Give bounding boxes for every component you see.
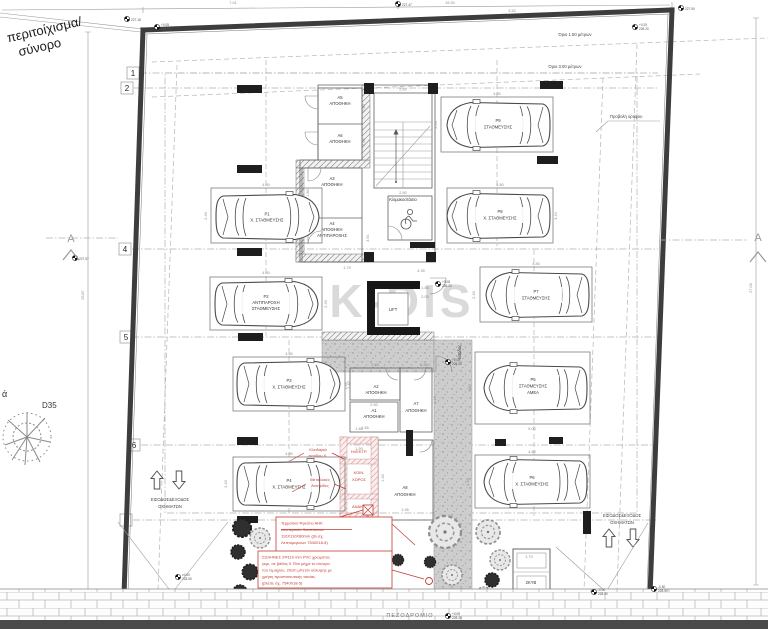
- pvc-note-2: γκρι, σε βάθος 0.75m μέχρι το σύνορο: [262, 561, 331, 566]
- street-edge: [0, 620, 768, 629]
- lock-note-2: εισόδου Χ.: [309, 453, 328, 458]
- floor-plan-drawing: 16.30 7.01 3.52 25.87 27.03 περιτοίχισμα…: [0, 0, 768, 629]
- p7-id: P7: [533, 289, 539, 294]
- p2-id: P2: [263, 294, 269, 299]
- dim-right-total: 27.03: [749, 283, 753, 293]
- grid-bubble-1: 1: [127, 67, 139, 79]
- dim-lobby-205: 2.05: [421, 295, 428, 299]
- storage-a3-type: ΑΠΟΘΗΚΗ: [321, 182, 342, 187]
- level-22747: 227.47: [402, 3, 412, 7]
- parking-stall-p7: P7 ΣΤΑΘΜΕΥΣΗΣ 4.80 2.40: [472, 262, 592, 322]
- p5-dim-w: 3.30: [468, 384, 472, 391]
- entry-right-label-1: ΕΙΣΟΔΟΣ&ΕΞΟΔΟΣ: [603, 513, 642, 518]
- level-22850-c: 228.50: [658, 589, 668, 593]
- level-22820-c: 228.20: [442, 284, 452, 288]
- p9-dim-l: 4.80: [493, 92, 500, 96]
- p1-dim-l: 4.80: [262, 183, 269, 187]
- p4-dim-w: 2.40: [224, 480, 228, 487]
- p6-dim-w: 2.40: [466, 478, 470, 485]
- ahk-note-1: Τερματικό Φρεάτιο ΑΗΚ: [281, 521, 323, 526]
- sidewalk-label: ΠΕΖΟΔΡΟΜΙΟ: [386, 613, 433, 619]
- metal-note-1: Μεταλλικές: [310, 477, 330, 482]
- storage-a4-type: ΑΠΟΘΗΚΗ: [321, 227, 342, 232]
- storage-a6-id: A6: [337, 133, 343, 138]
- storage-a6-type: ΑΠΟΘΗΚΗ: [329, 139, 350, 144]
- grid-number-4: 4: [123, 245, 128, 254]
- pvc-note-box: ΣΩΛΗΝΕΣ 2Φ110 mm PVC χρώματος γκρι, σε β…: [258, 551, 433, 588]
- ahk-note-4: Λεπτομερειών 7540018-5): [281, 540, 328, 545]
- dim-tech-140: 1.40: [381, 474, 385, 481]
- grid-number-6: 6: [132, 441, 137, 450]
- p1-label: Χ. ΣΤΑΘΜΕΥΣΗΣ: [250, 218, 284, 223]
- tree-id: D35: [42, 401, 57, 410]
- level-22850-b: 228.50: [598, 592, 608, 596]
- grid-bubble-2: 2: [121, 82, 133, 94]
- grid-number-1: 1: [131, 69, 136, 78]
- pvc-note-3: του τεμαχίου, 20cm μπετόν κάλυψης με: [262, 568, 332, 573]
- p1-id: P1: [264, 212, 270, 217]
- p5-dim-l: 5.00: [528, 427, 535, 431]
- level-22820-d: 228.20: [452, 616, 462, 620]
- setback-150-label: Όριο 1.50 μέτρων: [557, 32, 591, 37]
- recycle-room-label: ΑΝΑΚ.: [352, 504, 364, 509]
- entry-right-label-2: ΟΧΗΜΑΤΩΝ: [610, 520, 634, 525]
- p7-dim-w: 2.40: [472, 291, 476, 298]
- setback-300-label: Όριο 3.00 μέτρων: [547, 64, 581, 69]
- p2-label-1: ΑΝΤΙΠΑΡΟΧΗ: [252, 300, 279, 305]
- entry-left-label-1: ΕΙΣΟΔΟΣ&ΕΞΟΔΟΣ: [151, 497, 190, 502]
- storage-a3-id: A3: [329, 176, 335, 181]
- storage-a5-id: A5: [337, 95, 343, 100]
- staircase-label: Κλιμακοστάσιο: [389, 197, 417, 202]
- dim-tech-150: 1.50: [355, 447, 362, 451]
- dim-stair-top: 2.80: [399, 88, 406, 92]
- section-label-left: A: [67, 233, 75, 245]
- dim-left-total: 25.87: [81, 290, 85, 300]
- common-room-label-2: ΧΩΡΟΣ: [352, 477, 366, 482]
- p8-dim-w: 3.44: [554, 212, 558, 219]
- bin-dim: 1.70: [525, 555, 532, 559]
- parking-stall-p2: P2 ΑΝΤΙΠΑΡΟΧΗ ΣΤΑΘΜΕΥΣΗΣ 4.80 2.40: [210, 271, 328, 330]
- staircase: 2.80 2.80 Κλιμακοστάσιο: [374, 88, 432, 203]
- dim-a8: 1.95: [401, 508, 408, 512]
- elevator-label: LIFT: [389, 307, 398, 312]
- p6-label: Χ. ΣΤΑΘΜΕΥΣΗΣ: [515, 482, 549, 487]
- storage-a5-type: ΑΠΟΘΗΚΗ: [329, 101, 350, 106]
- dim-a2-w: 2.45: [371, 363, 378, 367]
- p6-id: P6: [529, 475, 535, 480]
- p7-label: ΣΤΑΘΜΕΥΣΗΣ: [522, 296, 550, 301]
- grid-number-5: 5: [124, 333, 129, 342]
- level-22820-b: 228.20: [639, 27, 649, 31]
- dim-a7-w: 1.58: [420, 363, 427, 367]
- p2-dim-w: 2.40: [324, 300, 328, 307]
- section-markers: A A: [46, 232, 766, 262]
- p8-dim-l: 4.80: [496, 183, 503, 187]
- p3-label: Χ. ΣΤΑΘΜΕΥΣΗΣ: [272, 385, 306, 390]
- grid-number-2: 2: [125, 84, 130, 93]
- dim-core-left: 3.91: [366, 234, 370, 241]
- p7-dim-l: 4.80: [532, 262, 539, 266]
- p3-id: P3: [286, 378, 292, 383]
- p8-id: P8: [497, 209, 503, 214]
- parking-stall-p9: P9 ΣΤΑΘΜΕΥΣΗΣ 4.80 2.40: [434, 92, 553, 152]
- dim-a7-h: 3.10: [433, 396, 437, 403]
- dim-top-segment: 3.52: [508, 9, 515, 13]
- section-label-right: A: [754, 232, 762, 244]
- parking-stall-p6: P6 Χ. ΣΤΑΘΜΕΥΣΗΣ 4.80 2.40: [466, 450, 590, 508]
- p3-dim-l: 4.80: [285, 352, 292, 356]
- storage-a1-type: ΑΠΟΘΗΚΗ: [363, 414, 384, 419]
- p9-label: ΣΤΑΘΜΕΥΣΗΣ: [484, 125, 512, 130]
- parking-stall-p5-disabled: P5 ΣΤΑΘΜΕΥΣΗΣ ΑΜΕΑ 3.30 5.00: [468, 352, 590, 431]
- storage-a4-id: A4: [329, 221, 335, 226]
- storage-a2-id: A2: [373, 384, 379, 389]
- storage-a8-type: ΑΠΟΘΗΚΗ: [394, 492, 415, 497]
- storage-a1-id: A1: [371, 408, 377, 413]
- level-22718: 227.18: [131, 18, 141, 22]
- dim-corridor: 1.79: [343, 266, 350, 270]
- lock-note-1: Κλειδαριά: [309, 447, 327, 452]
- dim-top-total: 16.30: [445, 1, 455, 5]
- floor-plan-canvas: 16.30 7.01 3.52 25.87 27.03 περιτοίχισμα…: [0, 0, 768, 629]
- wheelchair-icon: [401, 209, 417, 229]
- parking-stall-p1: P1 Χ. ΣΤΑΘΜΕΥΣΗΣ 4.80 2.40: [204, 183, 322, 243]
- vehicle-entry-right: ΕΙΣΟΔΟΣ&ΕΞΟΔΟΣ ΟΧΗΜΑΤΩΝ: [556, 513, 648, 592]
- dim-a5: 1.64: [362, 104, 366, 111]
- p5-label-2: ΑΜΕΑ: [527, 390, 539, 395]
- level-22850-a: 228.50: [182, 577, 192, 581]
- sidewalk: ΠΕΖΟΔΡΟΜΙΟ: [0, 589, 768, 629]
- level-22820-a: 228.20: [161, 27, 171, 31]
- p2-label-2: ΣΤΑΘΜΕΥΣΗΣ: [252, 306, 280, 311]
- storage-a8: A8 ΑΠΟΘΗΚΗ 1.95: [394, 440, 432, 512]
- pvc-note-5: (βλέπε σχ. 7540018-5): [262, 581, 303, 586]
- p8-label: Χ. ΣΤΑΘΜΕΥΣΗΣ: [483, 216, 517, 221]
- bin-label: 2ΚΥΒ: [526, 580, 537, 585]
- dim-tech-top: 1.85: [355, 427, 362, 431]
- entry-left-label-2: ΟΧΗΜΑΤΩΝ: [158, 504, 182, 509]
- boundary-label: περιτοίχισμα/ σύνορο: [5, 13, 87, 60]
- storage-a8-id: A8: [402, 485, 408, 490]
- level-22750: 227.50: [685, 7, 695, 11]
- dim-lobby-435: 4.35: [417, 269, 424, 273]
- storage-a7: A7 ΑΠΟΘΗΚΗ: [405, 368, 426, 413]
- dim-lobby-185: 1.85: [421, 286, 428, 290]
- parking-stall-p8: P8 Χ. ΣΤΑΘΜΕΥΣΗΣ 4.80 3.44: [447, 183, 558, 243]
- grid-bubble-4: 4: [119, 243, 131, 255]
- storage-a1: A1 ΑΠΟΘΗΚΗ: [363, 408, 384, 419]
- p3-dim-w: 2.40: [347, 381, 351, 388]
- p6-dim-l: 4.80: [528, 450, 535, 454]
- dim-a1-w: 2.50: [370, 403, 377, 407]
- common-room-label-1: ΚΟΙΝ.: [354, 470, 365, 475]
- p1-dim-w: 2.40: [204, 212, 208, 219]
- vehicle-entry-left: ΕΙΣΟΔΟΣ&ΕΞΟΔΟΣ ΟΧΗΜΑΤΩΝ: [118, 471, 228, 593]
- storage-a3: A3 ΑΠΟΘΗΚΗ: [308, 168, 343, 187]
- ahk-note-3: 110Χ110Χ80mm (βλ.σχ.: [281, 534, 324, 539]
- p4-dim-l: 4.80: [285, 452, 292, 456]
- dim-a6: 1.64: [362, 138, 366, 145]
- pvc-note-1: ΣΩΛΗΝΕΣ 2Φ110 mm PVC χρώματος: [262, 555, 330, 560]
- storage-a7-id: A7: [413, 401, 419, 406]
- dim-stair-bottom: 2.80: [399, 191, 406, 195]
- tree-tag: ά: [2, 389, 7, 399]
- p2-dim-l: 4.80: [262, 271, 269, 275]
- existing-tree-d35: ά D35: [2, 389, 57, 465]
- dim-a3: 1.80: [306, 189, 310, 196]
- pvc-note-4: χρήση προστατευτικής ταινίας.: [262, 574, 316, 579]
- p4-id: P4: [286, 478, 292, 483]
- storage-a5: A5 ΑΠΟΘΗΚΗ: [305, 95, 351, 109]
- level-22830: 228.30: [452, 362, 462, 366]
- p5-id: P5: [530, 377, 536, 382]
- dim-top-left-segment: 7.01: [229, 1, 236, 5]
- storage-a7-type: ΑΠΟΘΗΚΗ: [405, 408, 426, 413]
- p5-label-1: ΣΤΑΘΜΕΥΣΗΣ: [519, 384, 547, 389]
- level-22757: 227.57: [79, 257, 89, 261]
- accessible-wc: [388, 196, 432, 240]
- storage-a2-type: ΑΠΟΘΗΚΗ: [365, 390, 386, 395]
- p9-id: P9: [495, 118, 501, 123]
- metal-note-2: Αντηρίδες: [311, 483, 329, 488]
- storage-a6: A6 ΑΠΟΘΗΚΗ: [305, 132, 351, 145]
- p9-dim-w: 2.40: [434, 121, 438, 128]
- floor-projection-label: Προβολή ορόφου: [610, 114, 643, 119]
